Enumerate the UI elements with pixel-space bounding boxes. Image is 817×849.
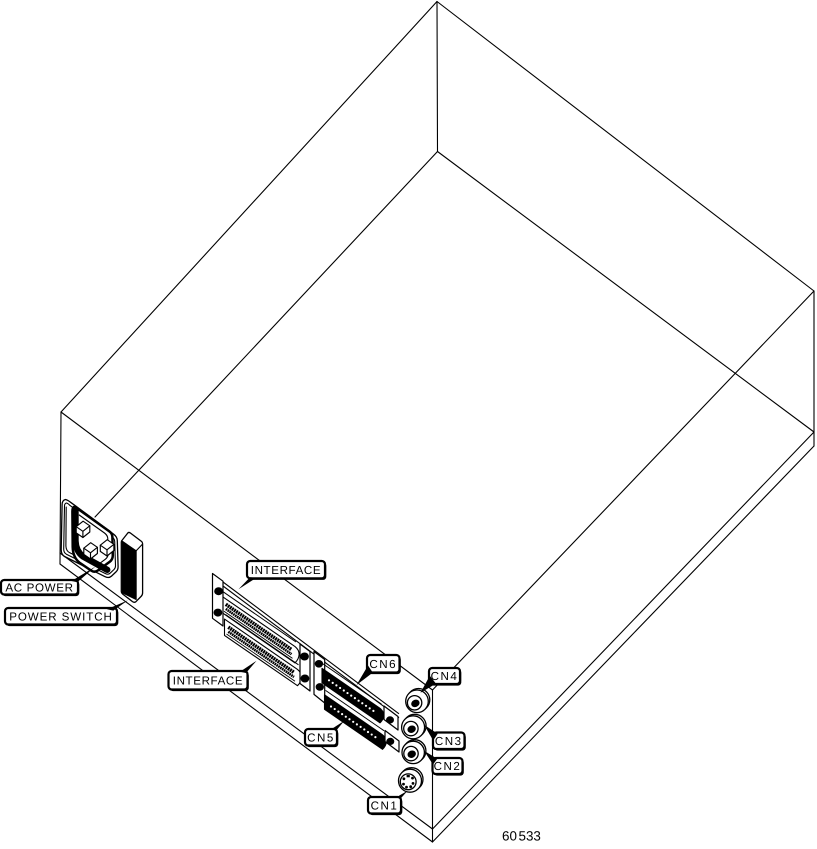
svg-text:CN6: CN6: [369, 658, 397, 671]
svg-text:60533: 60533: [502, 829, 541, 844]
svg-text:AC POWER: AC POWER: [5, 581, 73, 594]
svg-text:CN1: CN1: [371, 799, 399, 812]
svg-text:CN2: CN2: [434, 760, 462, 773]
svg-text:CN4: CN4: [431, 670, 459, 683]
svg-text:CN5: CN5: [307, 731, 335, 744]
svg-text:POWER SWITCH: POWER SWITCH: [9, 610, 113, 623]
svg-text:INTERFACE: INTERFACE: [251, 564, 321, 577]
svg-text:INTERFACE: INTERFACE: [173, 674, 243, 687]
svg-text:CN3: CN3: [435, 735, 463, 748]
